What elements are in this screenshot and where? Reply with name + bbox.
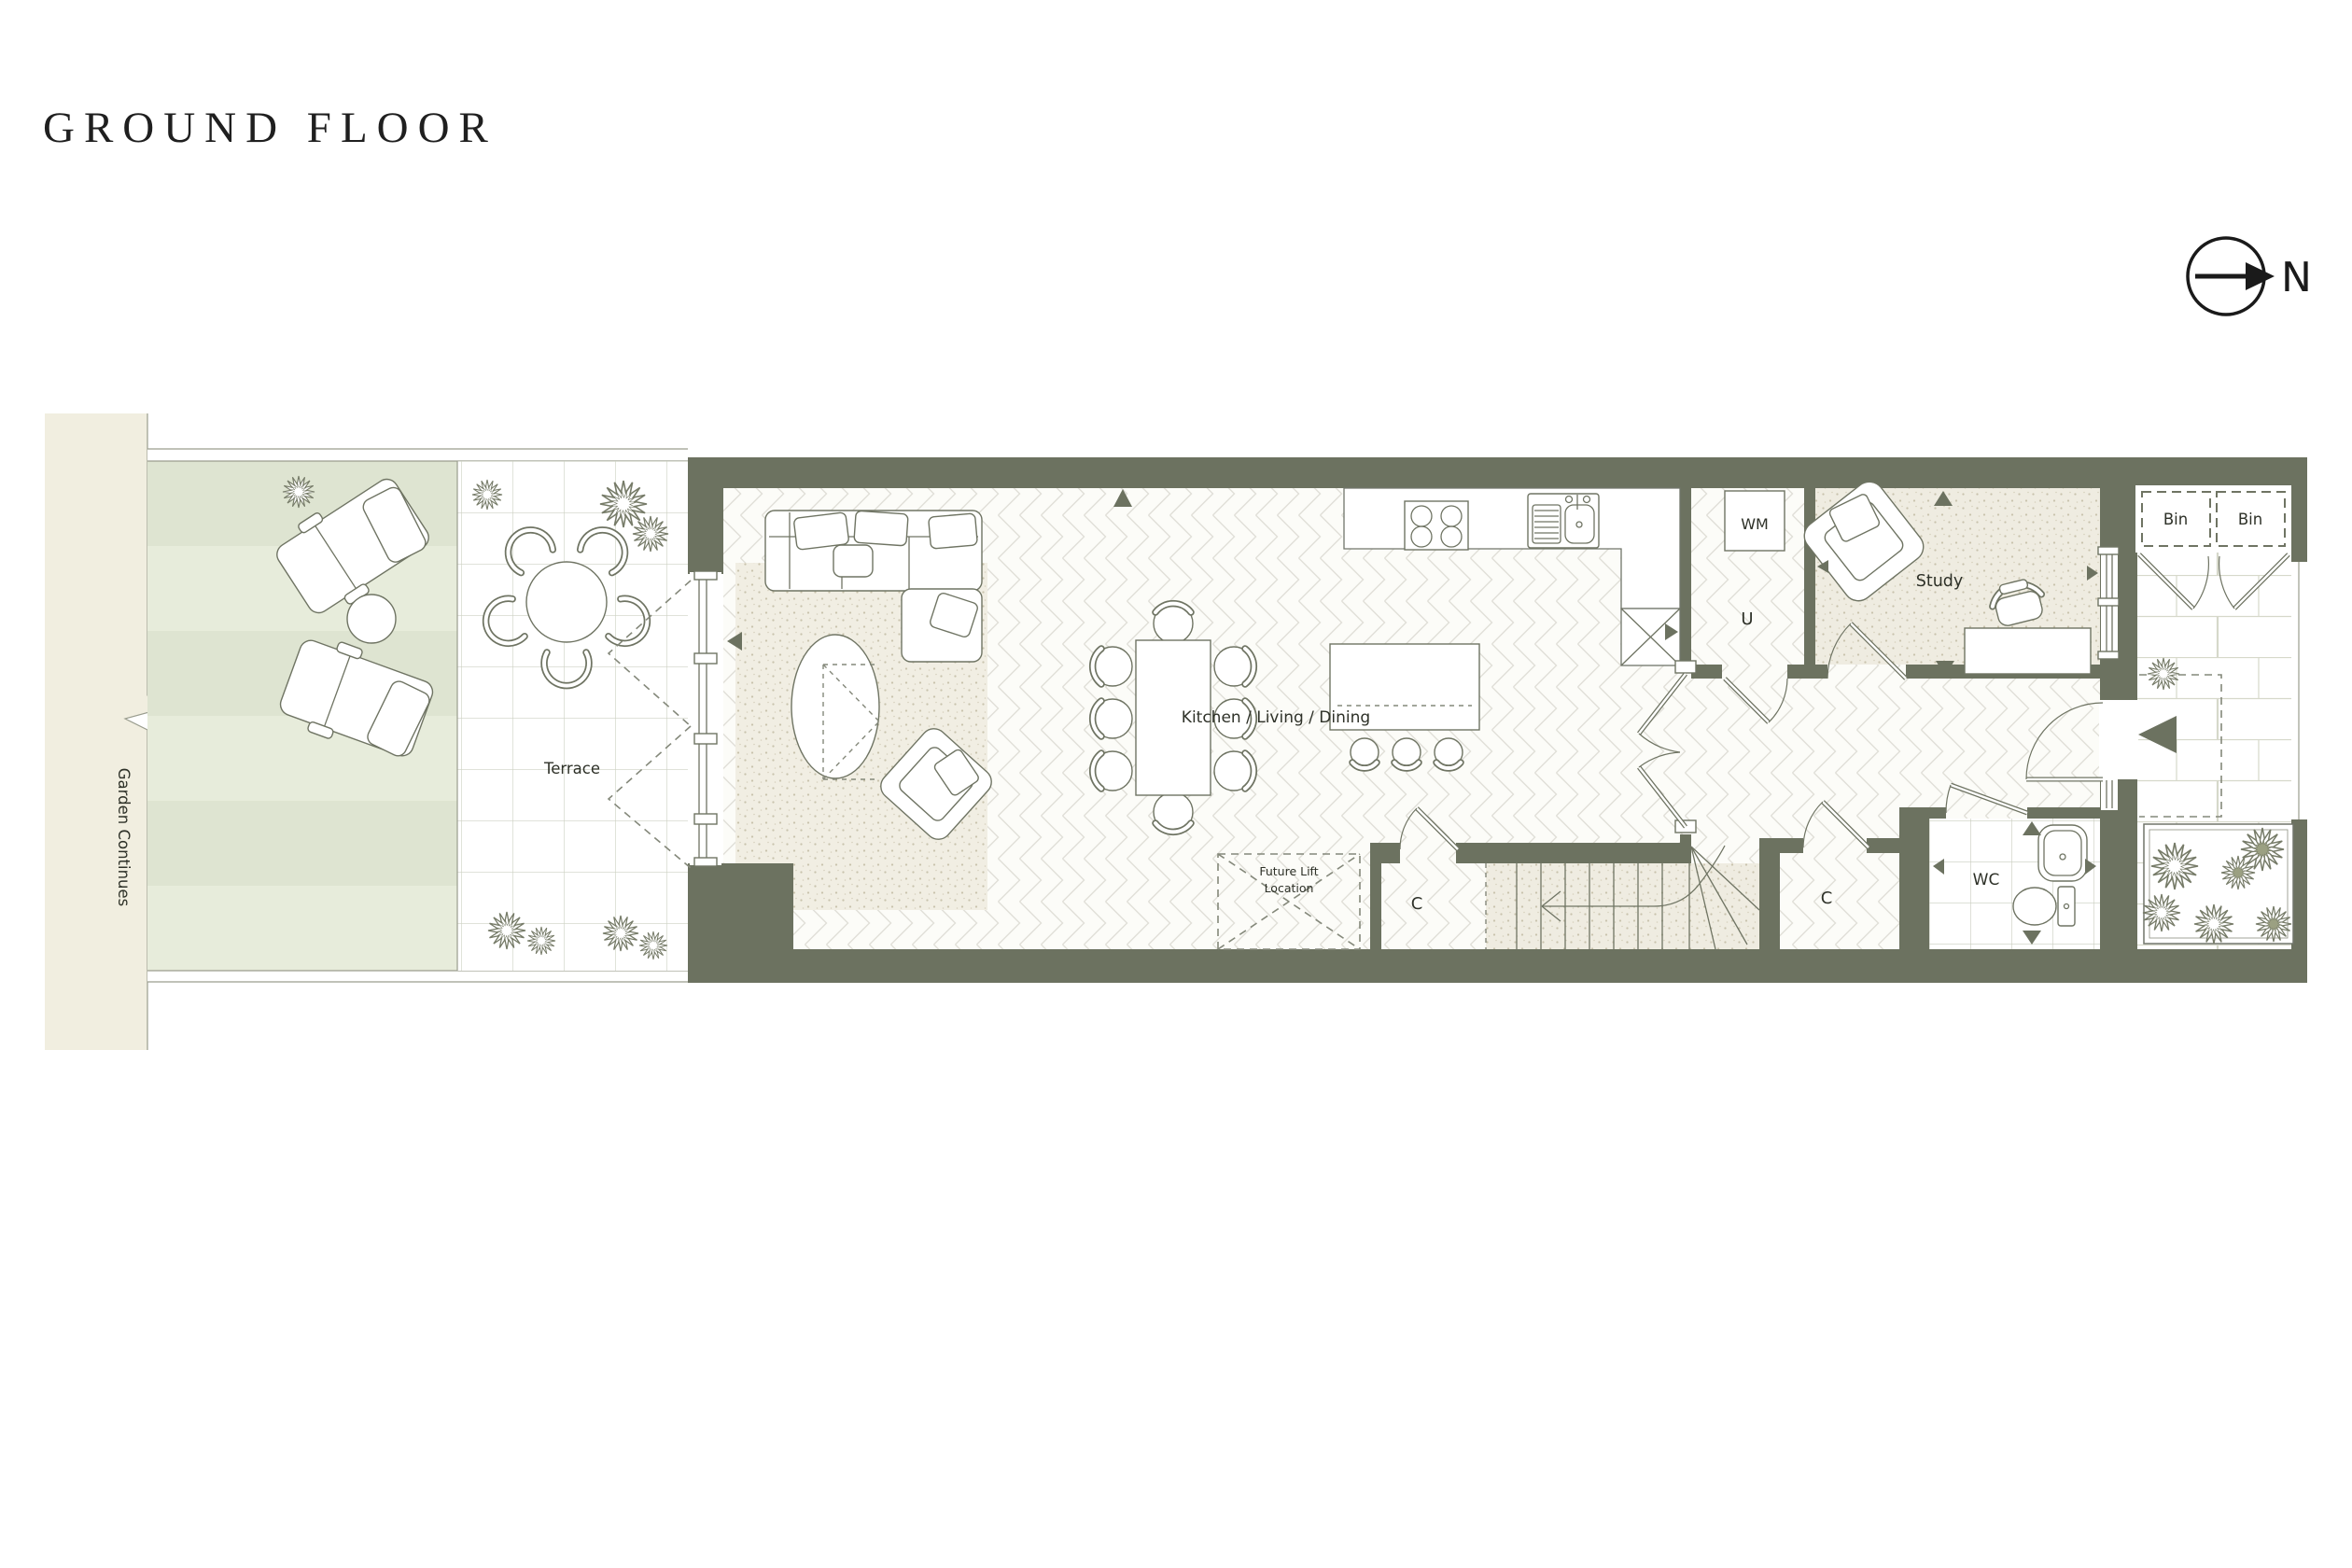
shrub-icon xyxy=(639,931,667,959)
study-desk xyxy=(1965,628,2091,674)
wm-label: WM xyxy=(1741,515,1769,533)
shrub-icon xyxy=(2256,906,2291,942)
bin2-label: Bin xyxy=(2238,511,2262,528)
sofa-tray xyxy=(833,545,873,577)
utility-label: U xyxy=(1741,609,1753,629)
shrub-icon xyxy=(600,481,647,527)
closet-c1-label: C xyxy=(1411,894,1423,914)
sofa-pillow xyxy=(854,511,908,546)
front-sidelight-window xyxy=(2101,778,2118,810)
sofa-pillow xyxy=(929,513,978,549)
dining-chair xyxy=(1093,699,1132,738)
study-label: Study xyxy=(1916,572,1964,591)
garden-side-table xyxy=(347,595,396,643)
floorplan-svg: GROUND FLOOR N Garden Continues Terrace xyxy=(0,0,2352,1568)
future-lift-label2: Location xyxy=(1265,881,1314,895)
kitchen-island xyxy=(1330,644,1479,768)
basin xyxy=(2038,825,2087,881)
bar-stool xyxy=(1393,738,1421,768)
dining-chair xyxy=(1214,751,1253,791)
shrub-icon xyxy=(2194,904,2233,944)
shrub-icon xyxy=(633,516,668,552)
front-door-opening xyxy=(2099,700,2138,779)
front-window xyxy=(2098,547,2119,659)
shrub-icon xyxy=(2143,894,2180,931)
north-label: N xyxy=(2281,254,2312,301)
terrace-label: Terrace xyxy=(543,760,600,777)
dining-chair xyxy=(1093,751,1132,791)
garden-continues-label: Garden Continues xyxy=(115,768,133,907)
sofa-pillow xyxy=(793,512,849,551)
shrub-icon xyxy=(472,480,502,510)
dining-chair xyxy=(1214,647,1253,686)
shrub-icon xyxy=(603,916,638,951)
floorplan-page: GROUND FLOOR N Garden Continues Terrace xyxy=(0,0,2352,1568)
void-box xyxy=(1621,609,1680,665)
closet-c2-label: C xyxy=(1821,889,1833,908)
coffee-table xyxy=(791,635,879,779)
toilet xyxy=(2013,887,2075,926)
dining-chair xyxy=(1154,792,1193,832)
bar-stool xyxy=(1435,738,1463,768)
dining-chair xyxy=(1093,647,1132,686)
terrace: Terrace xyxy=(457,461,688,971)
shrub-icon xyxy=(527,927,555,955)
north-arrowhead-icon xyxy=(2246,262,2275,290)
bin1-label: Bin xyxy=(2163,511,2188,528)
shrub-icon xyxy=(2241,828,2284,871)
terrace-table xyxy=(526,562,607,642)
bar-stool xyxy=(1351,738,1379,768)
shrub-icon xyxy=(2148,658,2179,690)
shrub-icon xyxy=(2151,843,2198,889)
shrub-icon xyxy=(488,912,525,949)
hob xyxy=(1405,501,1468,550)
shrub-icon xyxy=(283,476,315,508)
future-lift-label: Future Lift xyxy=(1259,864,1318,878)
wc-label: WC xyxy=(1973,871,2000,889)
planting-bed xyxy=(2143,824,2293,944)
dining-chair xyxy=(1154,604,1193,643)
sink xyxy=(1528,494,1599,548)
main-room-label: Kitchen / Living / Dining xyxy=(1182,708,1370,727)
north-compass: N xyxy=(2188,238,2312,315)
page-title: GROUND FLOOR xyxy=(43,104,497,152)
